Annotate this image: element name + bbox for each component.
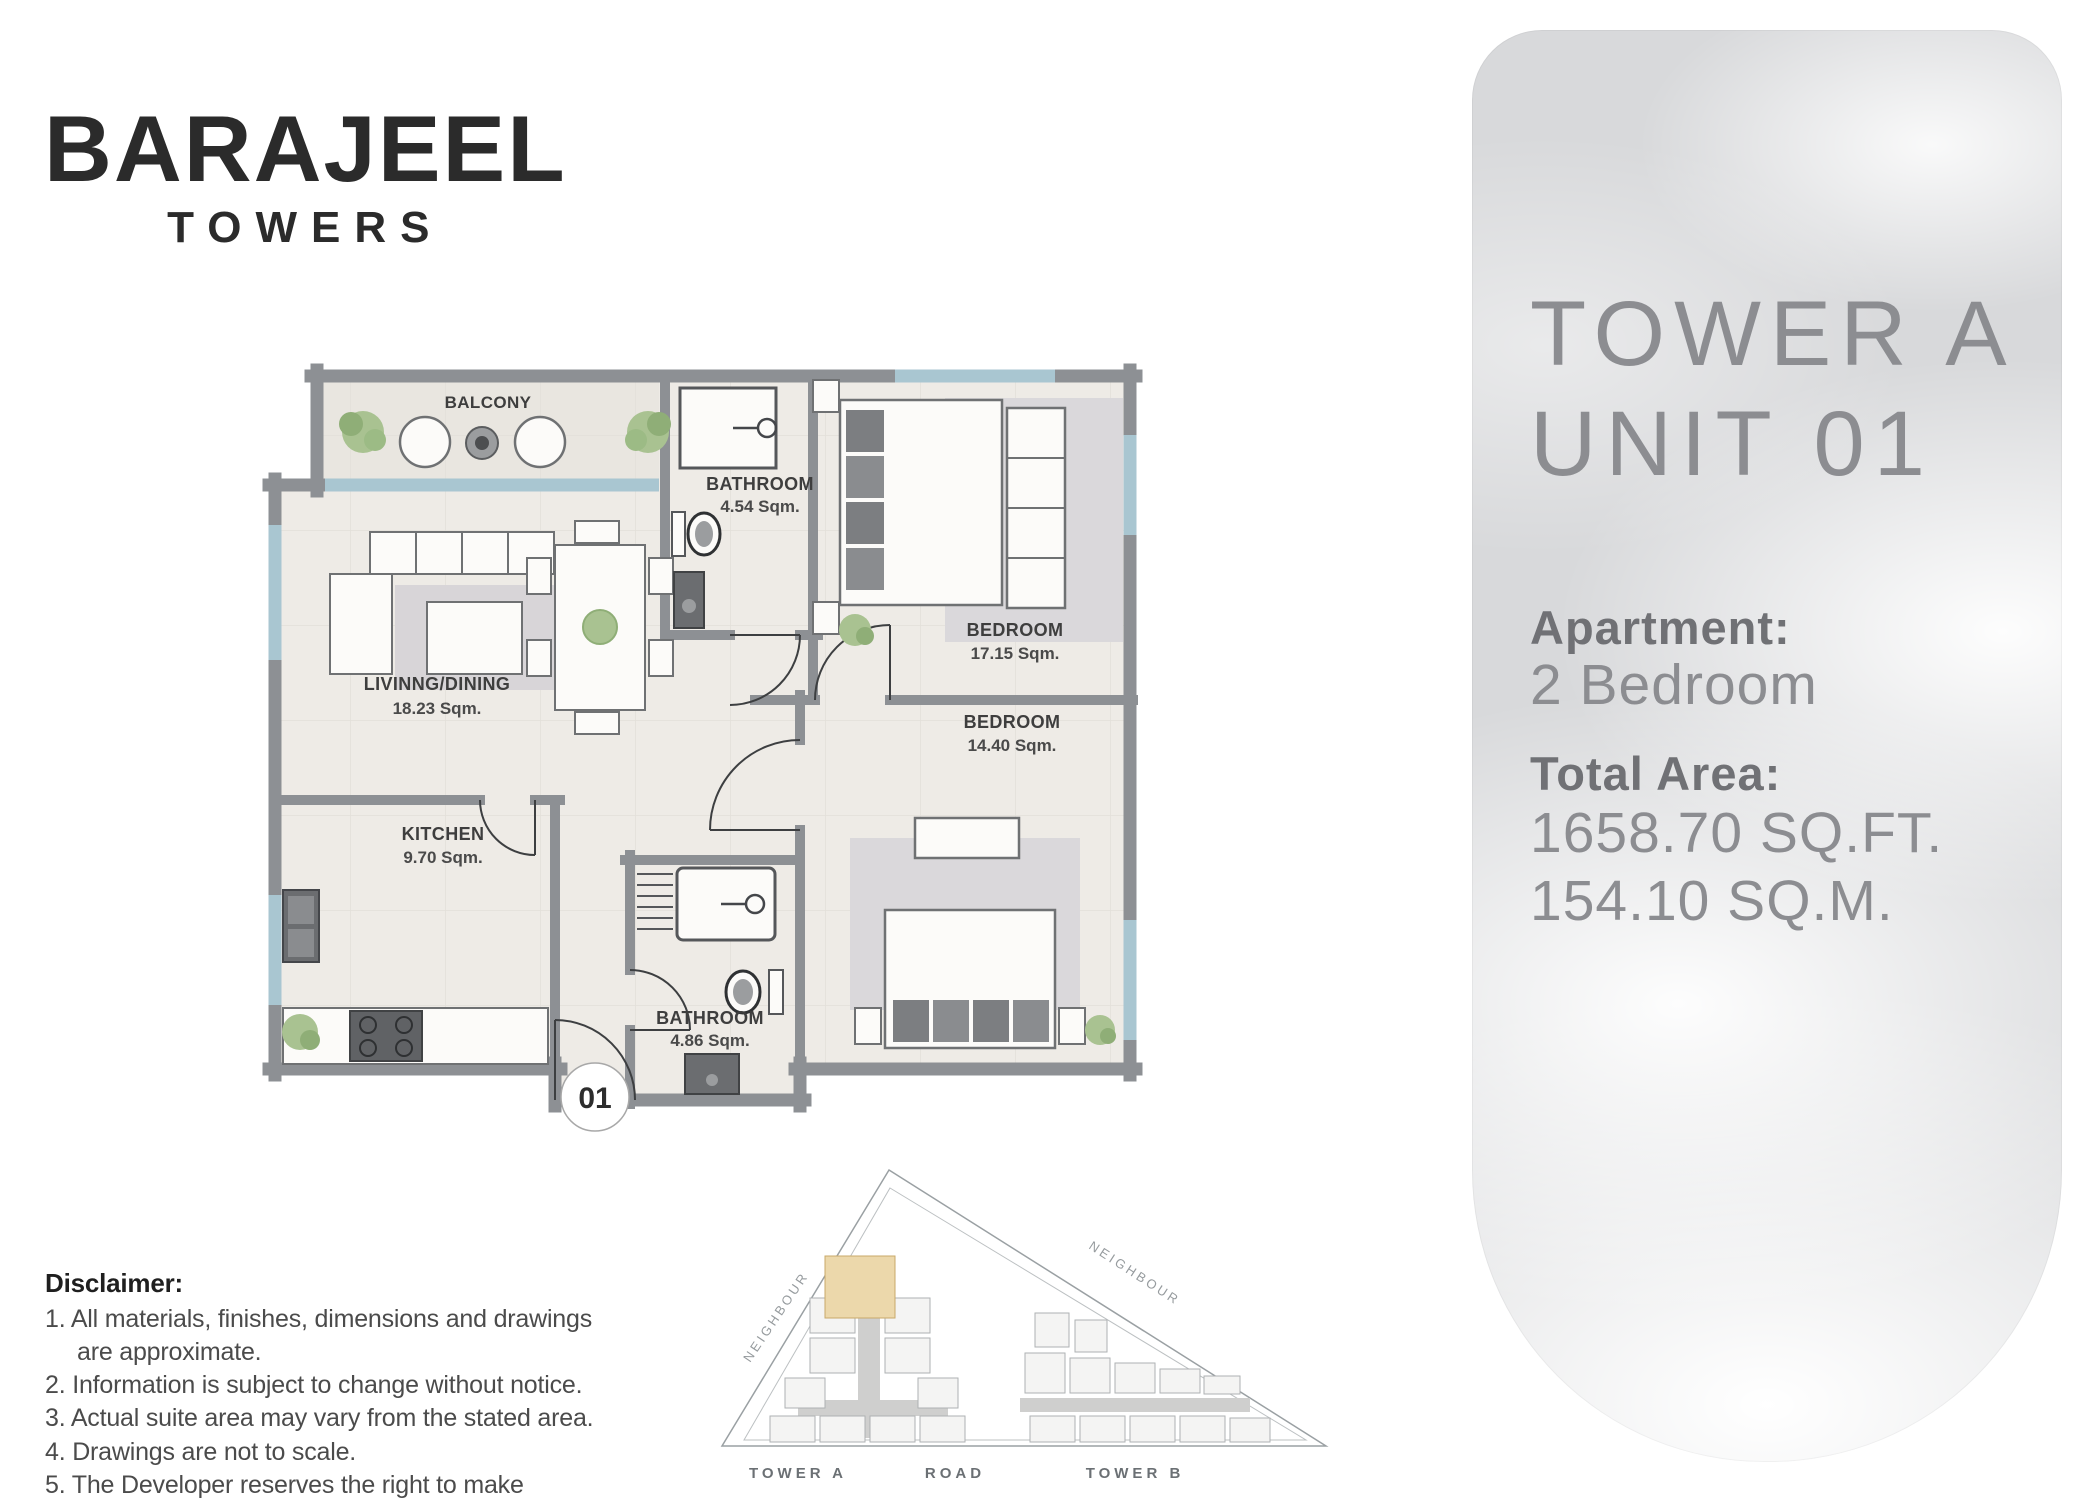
room-area-bathroom-top: 4.54 Sqm. (720, 497, 799, 516)
balcony-chair (400, 417, 450, 467)
site-highlighted-unit-01 (825, 1256, 895, 1318)
balcony-chair (515, 417, 565, 467)
room-label-kitchen: KITCHEN (402, 824, 485, 844)
stove (350, 1011, 422, 1061)
disclaimer-item: 2. Information is subject to change with… (45, 1369, 613, 1402)
room-area-kitchen: 9.70 Sqm. (403, 848, 482, 867)
panel-area-sqm: 154.10 SQ.M. (1530, 868, 1894, 934)
disclaimer-item: 5. The Developer reserves the right to m… (45, 1469, 613, 1506)
room-label-bathroom-top: BATHROOM (706, 474, 814, 494)
site-road-label: ROAD (925, 1465, 985, 1482)
brand-subtitle: TOWERS (44, 203, 567, 253)
room-label-bedroom-second: BEDROOM (964, 712, 1061, 732)
room-label-bathroom-bottom: BATHROOM (656, 1008, 764, 1028)
panel-tower-title: TOWER A (1530, 282, 2016, 387)
room-label-living-dining: LIVINNG/DINING (364, 674, 511, 694)
brochure-page: BARAJEEL TOWERS (0, 0, 2094, 1506)
room-area-bedroom-second: 14.40 Sqm. (968, 736, 1057, 755)
info-panel: TOWER A UNIT 01 Apartment: 2 Bedroom Tot… (1472, 30, 2062, 1462)
panel-total-area-label: Total Area: (1530, 746, 1781, 801)
bedroom-second-furniture (850, 818, 1116, 1048)
room-area-living-dining: 18.23 Sqm. (393, 699, 482, 718)
site-plan: NEIGHBOUR NEIGHBOUR TOWER A ROAD TOWER B (690, 1148, 1350, 1493)
panel-unit-title: UNIT 01 (1530, 392, 1934, 497)
disclaimer: Disclaimer: 1. All materials, finishes, … (45, 1266, 613, 1506)
disclaimer-item: 3. Actual suite area may vary from the s… (45, 1402, 613, 1435)
panel-apartment-value: 2 Bedroom (1530, 652, 1818, 718)
floor-plan: BALCONY BATHROOM 4.54 Sqm. BEDROOM 17.15… (255, 340, 1185, 1170)
disclaimer-item: 4. Drawings are not to scale. (45, 1436, 613, 1469)
panel-area-sqft: 1658.70 SQ.FT. (1530, 800, 1943, 866)
room-label-balcony: BALCONY (445, 393, 532, 412)
panel-apartment-label: Apartment: (1530, 600, 1791, 655)
brand-logo: BARAJEEL TOWERS (44, 100, 567, 253)
site-tower-a-label: TOWER A (749, 1465, 847, 1482)
disclaimer-title: Disclaimer: (45, 1266, 613, 1301)
room-area-bedroom-master: 17.15 Sqm. (971, 644, 1060, 663)
room-label-bedroom-master: BEDROOM (967, 620, 1064, 640)
unit-number-marker: 01 (561, 1063, 629, 1131)
brand-name: BARAJEEL (44, 100, 567, 199)
site-tower-b-label: TOWER B (1086, 1465, 1185, 1482)
disclaimer-item: 1. All materials, finishes, dimensions a… (45, 1303, 613, 1370)
site-neighbour-right-label: NEIGHBOUR (1086, 1238, 1183, 1308)
bedroom-master-furniture (813, 380, 1123, 646)
room-area-bathroom-bottom: 4.86 Sqm. (670, 1031, 749, 1050)
unit-number-text: 01 (578, 1082, 611, 1115)
